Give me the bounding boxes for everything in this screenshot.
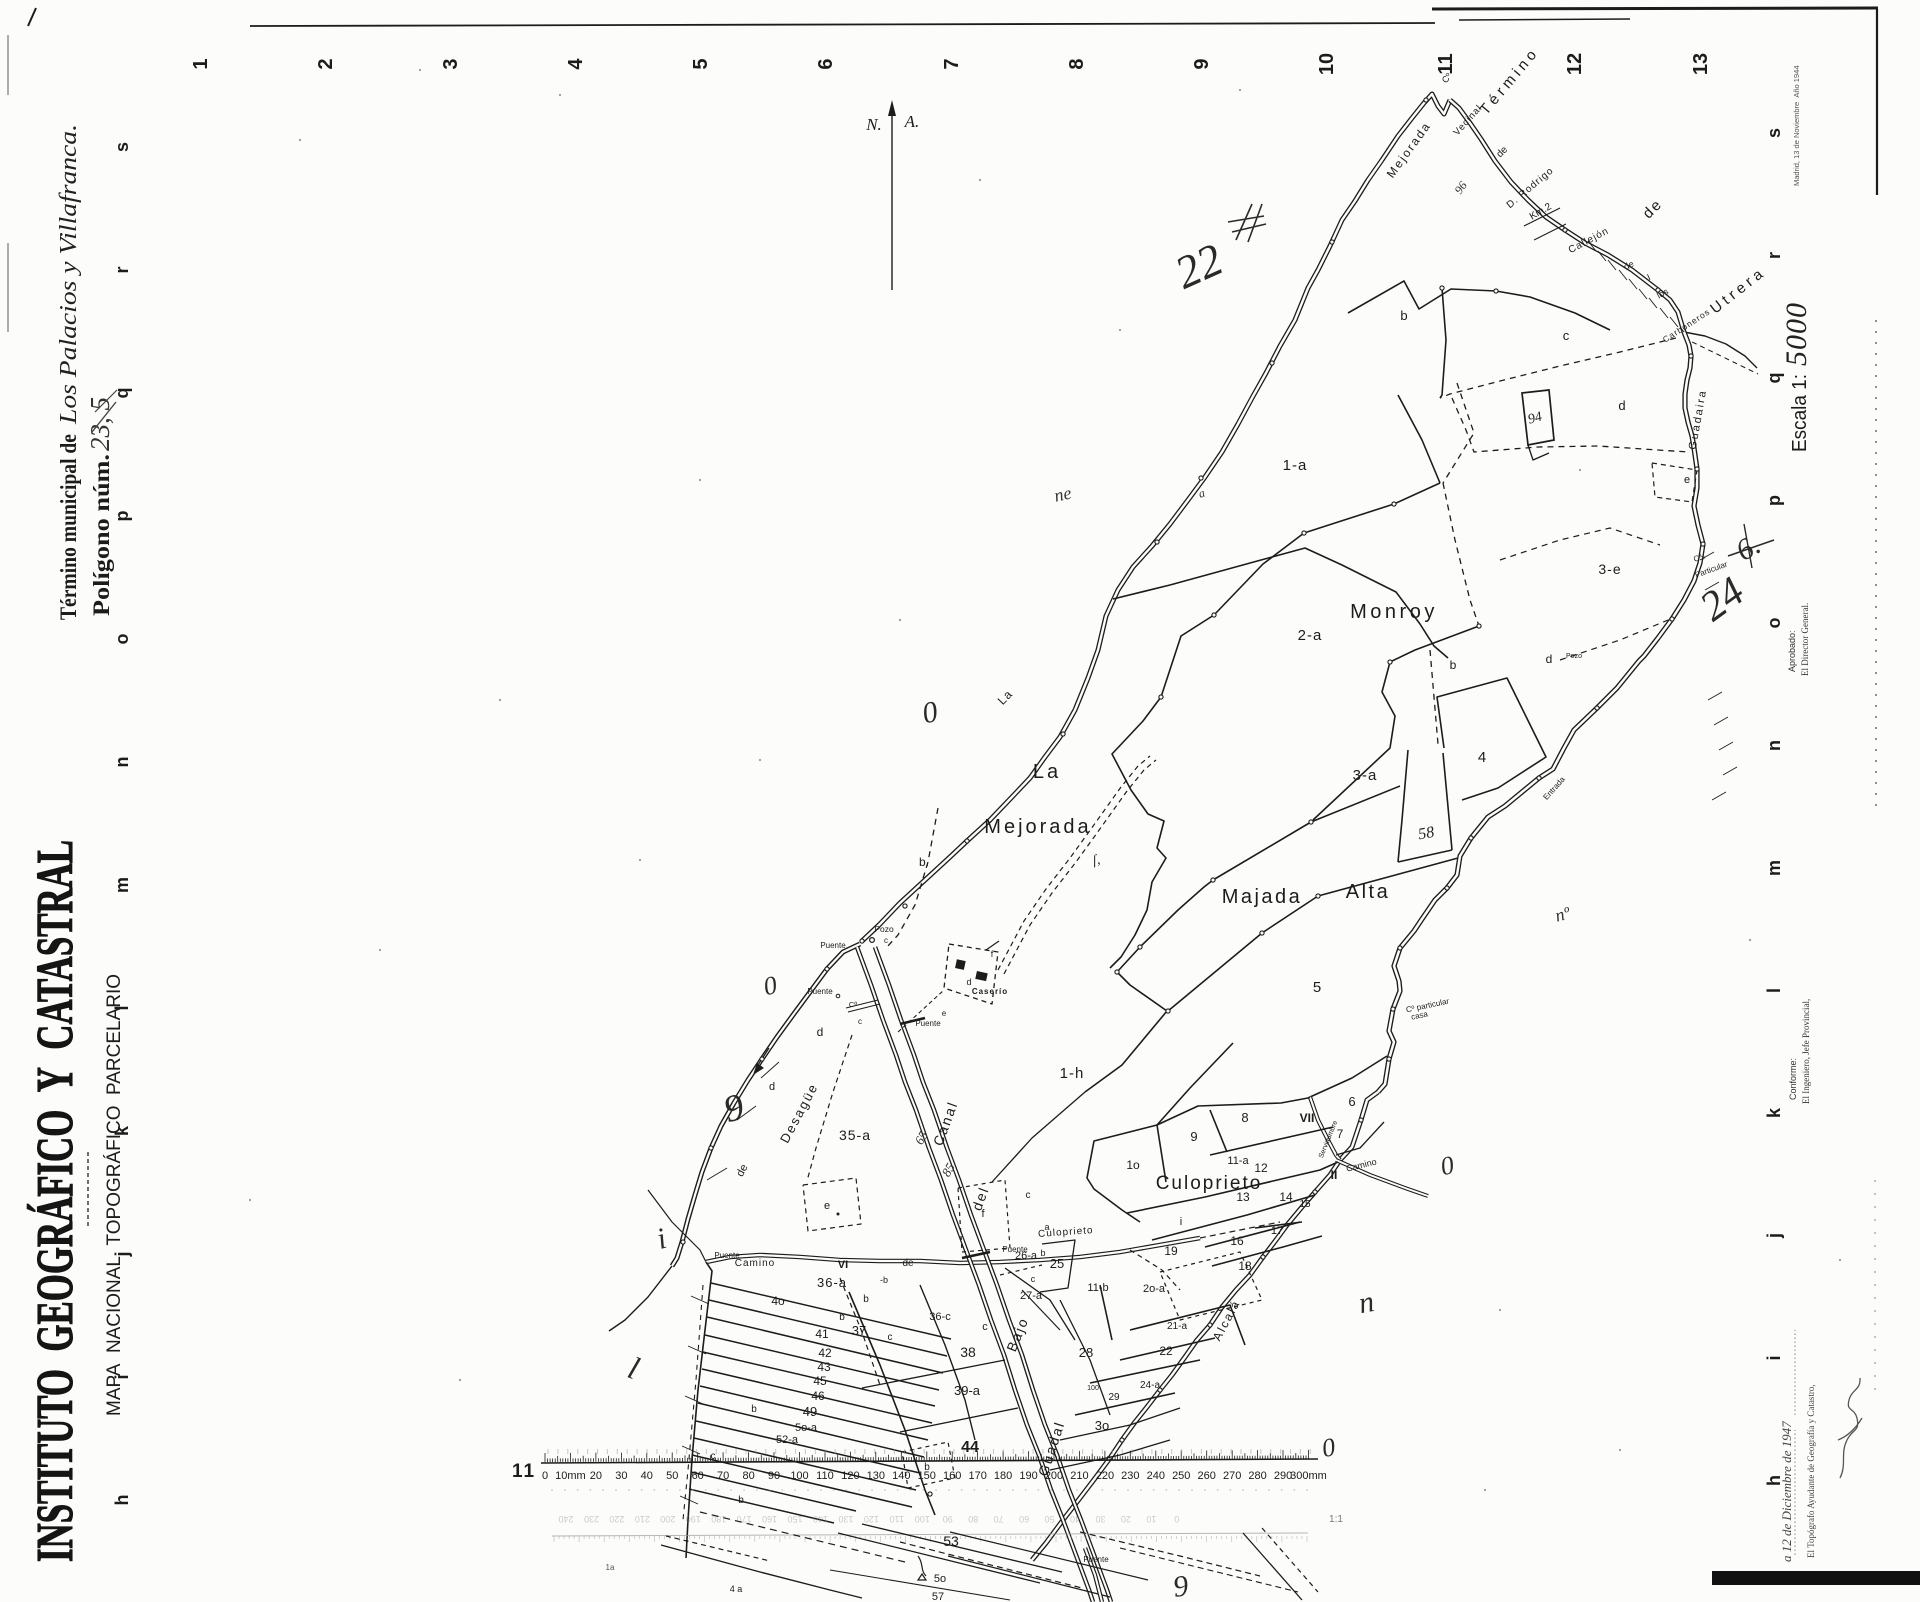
svg-text:70: 70: [717, 1470, 729, 1482]
svg-text:d: d: [817, 1025, 824, 1039]
svg-text:b: b: [1040, 1248, 1045, 1258]
svg-text:8: 8: [1241, 1110, 1248, 1125]
svg-text:r: r: [112, 266, 132, 273]
svg-text:220: 220: [609, 1514, 624, 1524]
svg-text:l: l: [1764, 988, 1784, 993]
svg-text:2-a: 2-a: [1298, 627, 1323, 644]
svg-text:3o: 3o: [1095, 1418, 1109, 1433]
svg-text:130: 130: [867, 1470, 885, 1482]
svg-text:220: 220: [1096, 1470, 1114, 1482]
svg-text:Los Palacios y Villafranca.: Los Palacios y Villafranca.: [56, 124, 82, 425]
svg-text:a: a: [1044, 1222, 1049, 1232]
svg-text:46: 46: [811, 1389, 825, 1403]
svg-text:3: 3: [440, 58, 462, 69]
svg-text:90: 90: [943, 1514, 953, 1524]
svg-text:21-a: 21-a: [1167, 1321, 1187, 1332]
svg-text:c: c: [982, 1321, 988, 1333]
svg-text:b: b: [738, 1495, 744, 1506]
svg-text:5: 5: [1313, 979, 1321, 996]
svg-text:A.: A.: [904, 112, 920, 131]
svg-text:24-a: 24-a: [1140, 1380, 1160, 1391]
svg-text:La: La: [1033, 761, 1061, 783]
svg-text:MAPA NACIONAL TOPOGRÁFICO P: MAPA NACIONAL TOPOGRÁFICO PARCELARIO: [104, 974, 125, 1416]
svg-text:52-a: 52-a: [776, 1434, 799, 1446]
svg-text:r: r: [1764, 252, 1784, 259]
svg-text:11-a: 11-a: [1227, 1155, 1249, 1167]
svg-text:Alta: Alta: [1346, 881, 1390, 903]
svg-text:200: 200: [1045, 1470, 1063, 1482]
svg-text:e: e: [824, 1200, 830, 1212]
svg-text:b.: b.: [919, 855, 929, 869]
svg-text:1:1: 1:1: [1329, 1514, 1343, 1525]
svg-text:130: 130: [838, 1514, 853, 1524]
svg-text:110: 110: [890, 1514, 904, 1524]
svg-text:9: 9: [1190, 1129, 1197, 1144]
svg-text:4: 4: [1478, 749, 1486, 766]
svg-text:22: 22: [1159, 1344, 1173, 1358]
svg-text:Polígono núm.: Polígono núm.: [89, 454, 114, 616]
svg-text:d: d: [1546, 652, 1553, 666]
svg-text:11: 11: [512, 1461, 536, 1482]
svg-text:m: m: [1764, 860, 1784, 876]
svg-text:280: 280: [1248, 1470, 1266, 1482]
svg-text:58: 58: [1417, 824, 1436, 844]
svg-text:40: 40: [641, 1470, 653, 1482]
svg-text:1-a: 1-a: [1283, 457, 1308, 474]
svg-text:2o-a: 2o-a: [1143, 1283, 1166, 1295]
svg-text:q: q: [112, 388, 132, 399]
svg-text:c: c: [888, 1332, 893, 1343]
svg-text:6: 6: [1348, 1094, 1355, 1109]
svg-text:260: 260: [1198, 1470, 1216, 1482]
svg-text:Madrid, 13 de Noviembre Año 1: Madrid, 13 de Noviembre Año 1944: [1792, 66, 1801, 187]
svg-text:El Director General.: El Director General.: [1800, 603, 1810, 676]
svg-text:20: 20: [590, 1470, 602, 1482]
svg-text:k: k: [1764, 1107, 1784, 1118]
svg-text:13: 13: [1690, 53, 1712, 75]
svg-text:9: 9: [1191, 58, 1213, 69]
svg-text:170: 170: [968, 1470, 986, 1482]
svg-text:17: 17: [1271, 1225, 1283, 1237]
svg-text:170: 170: [737, 1514, 752, 1524]
svg-text:53: 53: [943, 1533, 959, 1549]
svg-text:25: 25: [1050, 1256, 1064, 1271]
svg-text:Término municipal de: Término municipal de: [56, 434, 81, 620]
svg-text:Caserío: Caserío: [972, 987, 1008, 996]
svg-text:120: 120: [841, 1470, 859, 1482]
svg-text:i: i: [1180, 1216, 1182, 1228]
svg-text:23, 5: 23, 5: [85, 397, 115, 451]
svg-text:110: 110: [816, 1470, 834, 1482]
svg-text:140: 140: [892, 1470, 910, 1482]
svg-text:210: 210: [635, 1514, 650, 1524]
svg-text:8: 8: [1066, 58, 1088, 69]
svg-text:Monroy: Monroy: [1350, 601, 1438, 623]
svg-text:a 12 de Diciembre de 1947: a 12 de Diciembre de 1947: [1779, 1421, 1794, 1562]
svg-text:180: 180: [994, 1470, 1012, 1482]
svg-text:c: c: [1563, 328, 1570, 343]
svg-text:VII: VII: [1300, 1111, 1315, 1125]
svg-text:4 a: 4 a: [730, 1584, 743, 1594]
svg-text:14: 14: [1279, 1190, 1293, 1204]
svg-text:80: 80: [742, 1470, 754, 1482]
svg-text:50: 50: [1045, 1514, 1055, 1524]
svg-text:d: d: [966, 977, 971, 987]
svg-text:e: e: [942, 1009, 947, 1018]
svg-text:57: 57: [932, 1591, 944, 1602]
svg-text:39-a: 39-a: [954, 1383, 981, 1398]
svg-text:41: 41: [815, 1327, 829, 1341]
svg-text:-b: -b: [880, 1275, 888, 1285]
svg-text:150: 150: [918, 1470, 936, 1482]
svg-text:230: 230: [584, 1514, 599, 1524]
svg-text:13: 13: [1236, 1190, 1250, 1204]
svg-text:200: 200: [660, 1514, 675, 1524]
svg-text:N.: N.: [865, 115, 882, 134]
svg-text:49: 49: [803, 1404, 817, 1419]
svg-text:28: 28: [1079, 1345, 1093, 1360]
svg-text:190: 190: [686, 1514, 701, 1524]
svg-text:100: 100: [790, 1470, 808, 1482]
svg-text:e: e: [1684, 474, 1690, 486]
svg-text:Pozo: Pozo: [1566, 653, 1582, 660]
svg-text:b: b: [751, 1404, 757, 1415]
svg-text:n: n: [1764, 740, 1784, 751]
svg-text:c: c: [1026, 1190, 1031, 1201]
svg-text:36-a: 36-a: [817, 1275, 847, 1290]
svg-text:Camino: Camino: [735, 1258, 775, 1269]
svg-text:4: 4: [565, 58, 587, 70]
svg-text:o: o: [1764, 618, 1784, 629]
svg-text:160: 160: [762, 1514, 777, 1524]
svg-text:70: 70: [994, 1514, 1004, 1524]
svg-text:26-a: 26-a: [1015, 1250, 1038, 1262]
svg-text:p: p: [1764, 495, 1784, 506]
svg-text:240: 240: [1147, 1470, 1165, 1482]
svg-text:1o: 1o: [1126, 1158, 1140, 1172]
svg-text:160: 160: [943, 1470, 961, 1482]
svg-text:7: 7: [941, 58, 963, 69]
svg-text:c: c: [1031, 1274, 1036, 1284]
svg-text:18: 18: [1238, 1259, 1252, 1273]
svg-text:Puente: Puente: [820, 941, 846, 950]
svg-text:s: s: [1764, 128, 1784, 138]
svg-text:270: 270: [1223, 1470, 1241, 1482]
svg-text:140: 140: [813, 1514, 828, 1524]
svg-text:90: 90: [768, 1470, 780, 1482]
svg-text:16: 16: [1230, 1234, 1244, 1248]
svg-text:d: d: [769, 1081, 775, 1093]
svg-text:Conforme:: Conforme:: [1788, 1058, 1798, 1100]
svg-text:100: 100: [1087, 1385, 1099, 1392]
svg-text:m: m: [112, 877, 132, 893]
svg-text:Majada: Majada: [1222, 886, 1303, 908]
svg-text:27-a: 27-a: [1020, 1290, 1043, 1302]
svg-text:5000: 5000: [1780, 302, 1813, 366]
svg-text:s: s: [112, 142, 132, 152]
svg-text:36-c: 36-c: [929, 1311, 951, 1323]
svg-text:p: p: [112, 511, 132, 522]
svg-text:190: 190: [1019, 1470, 1037, 1482]
svg-text:Puente: Puente: [915, 1019, 941, 1028]
svg-text:0: 0: [542, 1470, 548, 1482]
svg-text:b: b: [863, 1294, 869, 1305]
svg-text:Escala 1:: Escala 1:: [1789, 374, 1811, 452]
svg-text:0: 0: [1174, 1514, 1179, 1524]
svg-text:Puente: Puente: [807, 987, 833, 996]
svg-text:29: 29: [1108, 1392, 1120, 1403]
svg-text:150: 150: [788, 1514, 803, 1524]
svg-text:40: 40: [1070, 1514, 1080, 1524]
svg-text:300mm: 300mm: [1290, 1470, 1327, 1482]
svg-text:El Ingeniero, Jefe Provincial,: El Ingeniero, Jefe Provincial,: [1801, 999, 1811, 1104]
svg-text:El Topógrafo Ayudante de Geogr: El Topógrafo Ayudante de Geografía y Cat…: [1806, 1384, 1816, 1558]
svg-text:15: 15: [1299, 1199, 1311, 1210]
svg-text:b: b: [839, 1312, 845, 1323]
svg-text:Puente: Puente: [1083, 1555, 1109, 1564]
svg-text:43: 43: [817, 1360, 831, 1374]
svg-text:c: c: [884, 936, 888, 945]
svg-text:120: 120: [864, 1514, 879, 1524]
svg-text:4o: 4o: [771, 1294, 785, 1308]
svg-text:3-a: 3-a: [1353, 767, 1378, 784]
svg-text:o: o: [112, 634, 132, 645]
svg-text:h: h: [112, 1495, 132, 1506]
svg-text:1-h: 1-h: [1060, 1065, 1085, 1082]
svg-text:7: 7: [1337, 1127, 1344, 1141]
svg-text:1: 1: [190, 58, 212, 69]
svg-text:2: 2: [315, 58, 337, 69]
svg-text:5o: 5o: [934, 1573, 946, 1585]
svg-text:37: 37: [852, 1323, 866, 1338]
svg-text:q: q: [1764, 373, 1784, 384]
svg-text:n: n: [112, 757, 132, 768]
svg-text:b: b: [1400, 308, 1407, 323]
svg-text:35-a: 35-a: [839, 1127, 871, 1143]
svg-text:30: 30: [1095, 1514, 1105, 1524]
svg-text:j: j: [1764, 1233, 1784, 1239]
svg-text:45: 45: [813, 1374, 827, 1388]
svg-text:6: 6: [815, 58, 837, 69]
svg-text:10: 10: [1316, 53, 1338, 75]
svg-text:1a: 1a: [606, 1563, 615, 1572]
svg-text:11-b: 11-b: [1087, 1282, 1108, 1294]
svg-text:100: 100: [915, 1514, 930, 1524]
svg-text:10: 10: [1146, 1514, 1156, 1524]
svg-text:VI: VI: [838, 1259, 848, 1271]
svg-text:50: 50: [666, 1470, 678, 1482]
svg-text:de: de: [902, 1258, 914, 1269]
svg-text:19: 19: [1164, 1244, 1178, 1258]
svg-text:30: 30: [615, 1470, 627, 1482]
svg-text:80: 80: [968, 1514, 978, 1524]
svg-text:3-e: 3-e: [1598, 561, 1621, 577]
svg-text:Aprobado:: Aprobado:: [1787, 630, 1797, 672]
svg-text:12: 12: [1254, 1161, 1268, 1175]
svg-text:Mejorada: Mejorada: [984, 816, 1091, 838]
svg-text:38: 38: [960, 1344, 976, 1360]
svg-text:b: b: [1450, 658, 1457, 672]
svg-text:12: 12: [1564, 53, 1586, 75]
svg-text:i: i: [1764, 1355, 1784, 1360]
svg-text:c: c: [858, 1017, 862, 1026]
svg-text:INSTITUTO GEOGRÁFICO Y CATA: INSTITUTO GEOGRÁFICO Y CATASTRAL: [26, 840, 84, 1562]
svg-text:60: 60: [1019, 1514, 1029, 1524]
svg-text:Cª: Cª: [849, 1000, 857, 1009]
svg-text:Pozo: Pozo: [874, 924, 894, 934]
svg-text:d: d: [1618, 398, 1625, 413]
svg-text:5o-a: 5o-a: [795, 1422, 818, 1434]
svg-text:60: 60: [692, 1470, 704, 1482]
svg-text:II: II: [1331, 1168, 1338, 1182]
svg-text:210: 210: [1070, 1470, 1088, 1482]
svg-text:10mm: 10mm: [555, 1470, 586, 1482]
svg-text:42: 42: [818, 1346, 832, 1360]
svg-text:20: 20: [1121, 1514, 1131, 1524]
svg-text:250: 250: [1172, 1470, 1190, 1482]
svg-text:240: 240: [558, 1514, 573, 1524]
svg-text:5: 5: [690, 58, 712, 69]
svg-text:230: 230: [1121, 1470, 1139, 1482]
